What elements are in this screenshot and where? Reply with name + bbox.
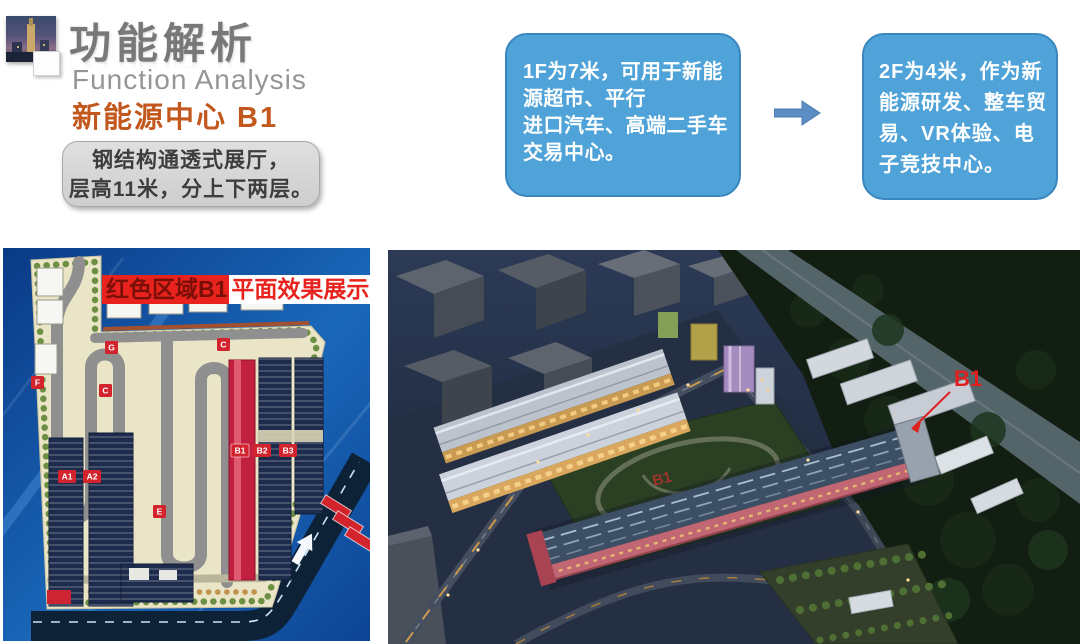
label-c1: C: [102, 386, 108, 396]
note-line-1: 钢结构通透式展厅，: [63, 146, 319, 175]
floor1-line-1: 1F为7米，可用于新能: [523, 59, 739, 86]
slide: { "header": { "title_cn": "功能解析", "title…: [0, 0, 1080, 644]
floor2-line-3: 易、VR体验、电: [879, 119, 1056, 150]
aerial-render-panel: B1 B1: [388, 250, 1080, 644]
plan-banner-red: 红色区域B1: [102, 275, 229, 304]
site-plan-panel: 红色区域B1平面效果展示: [3, 248, 370, 641]
floor2-line-2: 能源研发、整车贸: [879, 88, 1056, 119]
label-a2: A2: [87, 472, 98, 482]
right-arrow-icon: [774, 99, 824, 129]
label-b2: B2: [257, 446, 268, 456]
label-c2: C: [220, 340, 226, 350]
label-f: F: [35, 378, 40, 388]
section-title: 新能源中心 B1: [72, 94, 278, 136]
aerial-render-image: B1 B1: [388, 250, 1080, 644]
floor1-line-2: 源超市、平行: [523, 86, 739, 113]
site-plan-image: F G C C E A1 A2 B1 B2 B3: [3, 248, 370, 641]
label-a1: A1: [62, 472, 73, 482]
label-g: G: [108, 343, 115, 353]
floor2-callout-box: 2F为4米，作为新 能源研发、整车贸 易、VR体验、电 子竞技中心。: [862, 33, 1058, 200]
logo-white-square: [33, 51, 60, 76]
b1-callout-label: B1: [954, 366, 982, 391]
plan-banner-white: 平面效果展示: [229, 275, 370, 304]
label-b1: B1: [235, 446, 246, 456]
label-e: E: [157, 507, 163, 517]
floor2-line-4: 子竞技中心。: [879, 150, 1056, 181]
note-line-2: 层高11米，分上下两层。: [63, 175, 319, 204]
floor1-line-3: 进口汽车、高端二手车: [523, 113, 739, 140]
page-title-english: Function Analysis: [72, 64, 307, 96]
label-b3: B3: [283, 446, 294, 456]
floor1-callout-box: 1F为7米，可用于新能 源超市、平行 进口汽车、高端二手车 交易中心。: [505, 33, 741, 197]
building-b1-red: [229, 360, 255, 580]
note-box: 钢结构通透式展厅， 层高11米，分上下两层。: [62, 141, 320, 207]
floor2-line-1: 2F为4米，作为新: [879, 57, 1056, 88]
plan-banner: 红色区域B1平面效果展示: [102, 272, 370, 306]
floor1-line-4: 交易中心。: [523, 140, 739, 167]
red-accent-building: [47, 590, 71, 604]
